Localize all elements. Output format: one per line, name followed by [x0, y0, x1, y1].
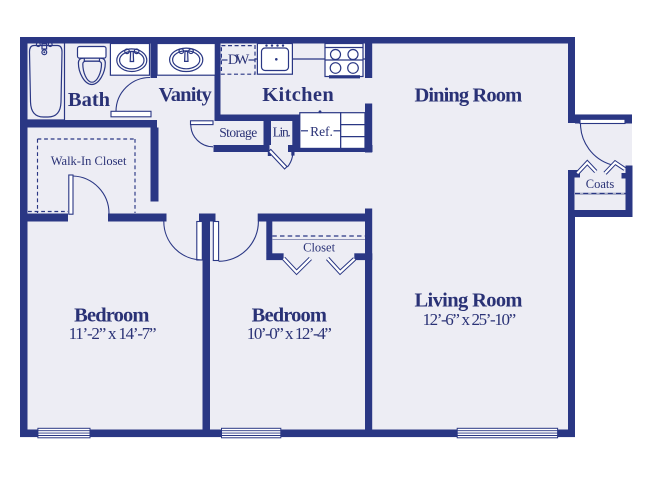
svg-text:Vanity: Vanity — [159, 84, 213, 106]
svg-text:Storage: Storage — [219, 125, 257, 140]
svg-text:Kitchen: Kitchen — [262, 84, 334, 106]
svg-text:10’-0” x 12’-4”: 10’-0” x 12’-4” — [247, 324, 332, 343]
svg-text:11’-2” x 14’-7”: 11’-2” x 14’-7” — [69, 324, 157, 343]
svg-text:Ref.: Ref. — [310, 124, 333, 139]
svg-text:Dining Room: Dining Room — [414, 85, 522, 107]
svg-text:Closet: Closet — [303, 240, 335, 254]
svg-text:Walk-In Closet: Walk-In Closet — [51, 154, 127, 168]
svg-text:12’-6” x 25’-10”: 12’-6” x 25’-10” — [422, 310, 516, 329]
svg-text:Coats: Coats — [586, 177, 615, 191]
svg-text:DW: DW — [228, 52, 250, 68]
svg-text:Bath: Bath — [68, 89, 111, 111]
svg-text:Living Room: Living Room — [415, 289, 523, 311]
svg-text:Lin.: Lin. — [273, 125, 291, 140]
